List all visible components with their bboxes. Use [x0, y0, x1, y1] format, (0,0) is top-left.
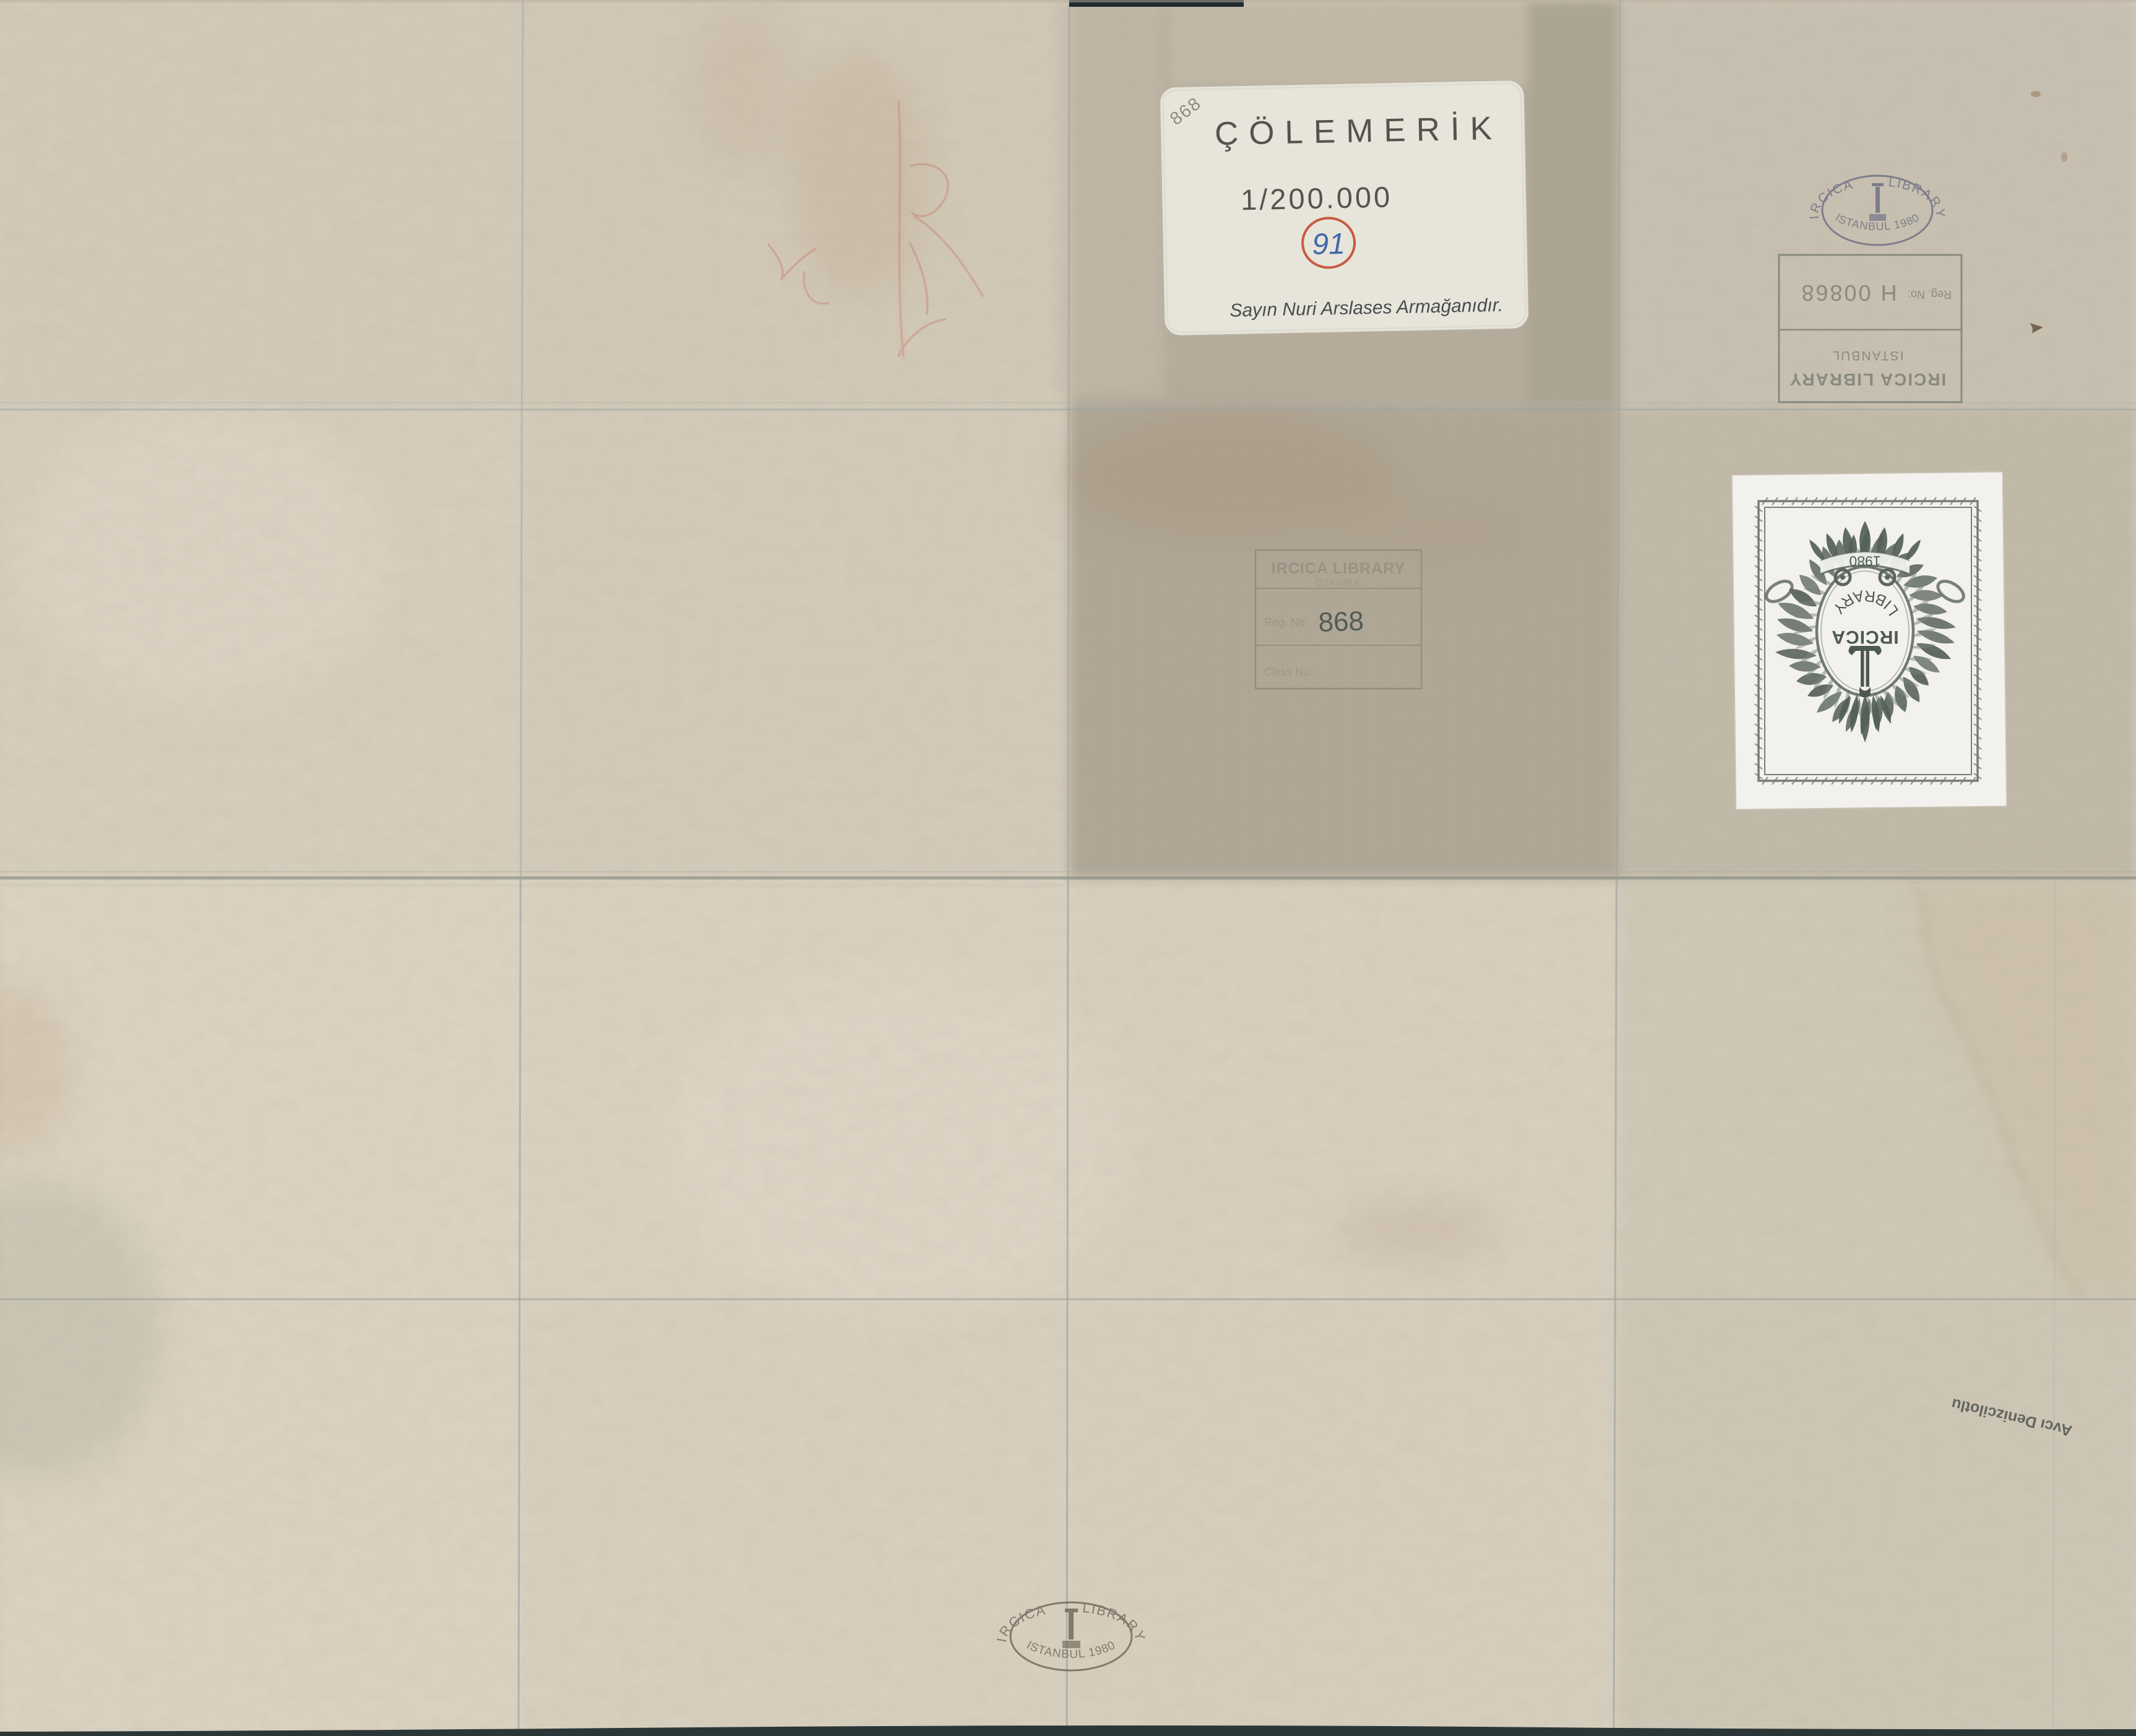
- svg-text:Reg. No:: Reg. No:: [1264, 616, 1308, 629]
- svg-text:H 00868: H 00868: [1799, 280, 1897, 306]
- svg-text:IRCICA LIBRARY: IRCICA LIBRARY: [1789, 370, 1947, 389]
- svg-text:ISTANBUL: ISTANBUL: [1831, 348, 1903, 363]
- svg-text:IRCICA LIBRARY: IRCICA LIBRARY: [1272, 560, 1405, 577]
- svg-text:868: 868: [1318, 606, 1364, 638]
- svg-text:91: 91: [1312, 228, 1345, 261]
- svg-text:ISTANBUL: ISTANBUL: [1314, 578, 1362, 588]
- svg-text:Class No:: Class No:: [1264, 666, 1312, 678]
- svg-text:IRCICA: IRCICA: [1831, 627, 1898, 647]
- svg-text:ÇÖLEMERİK: ÇÖLEMERİK: [1214, 110, 1502, 152]
- svg-text:Reg. No:: Reg. No:: [1908, 288, 1952, 301]
- svg-text:1/200.000: 1/200.000: [1241, 180, 1393, 216]
- svg-text:1980: 1980: [1849, 553, 1880, 569]
